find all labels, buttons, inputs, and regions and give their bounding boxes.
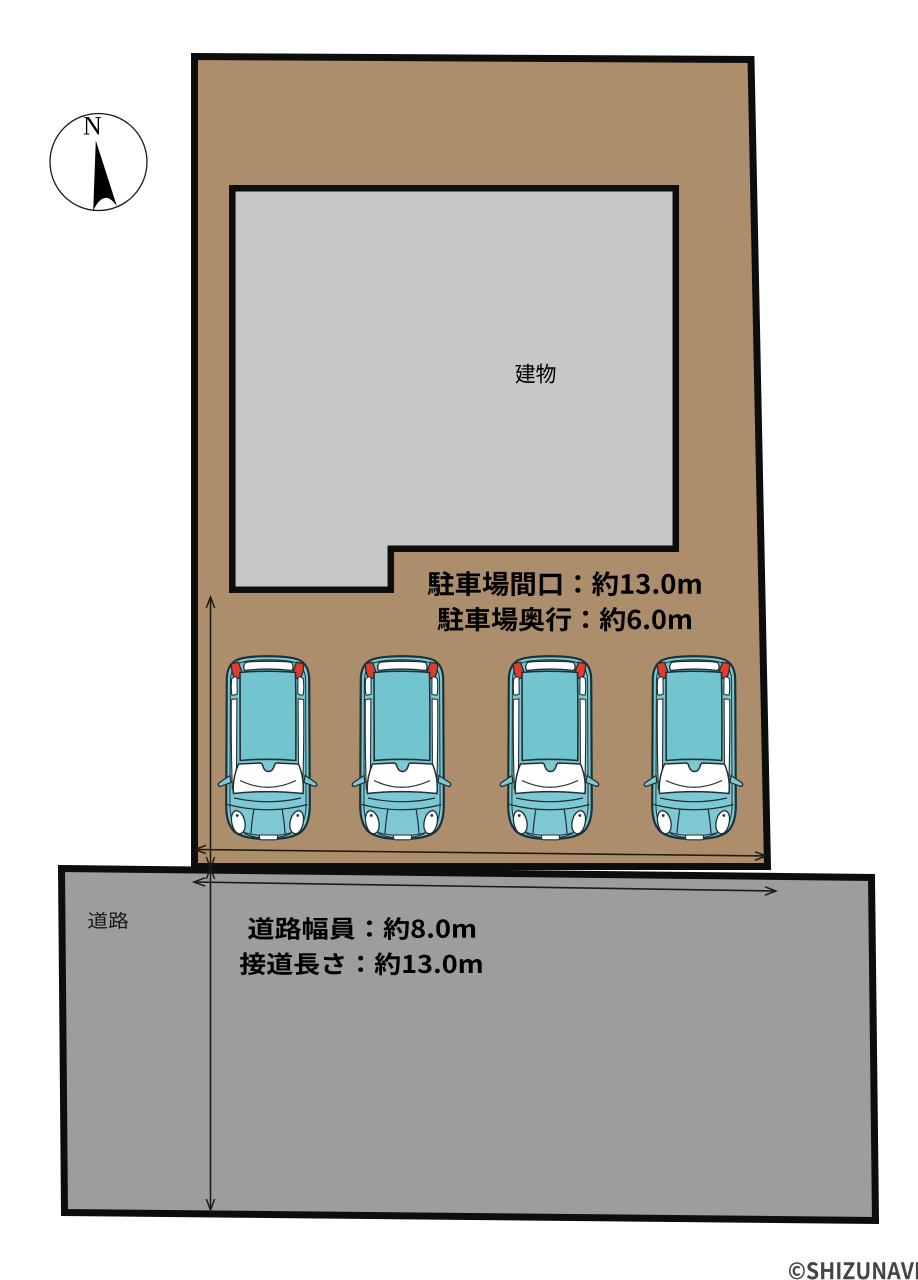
svg-text:N: N [83,112,102,141]
